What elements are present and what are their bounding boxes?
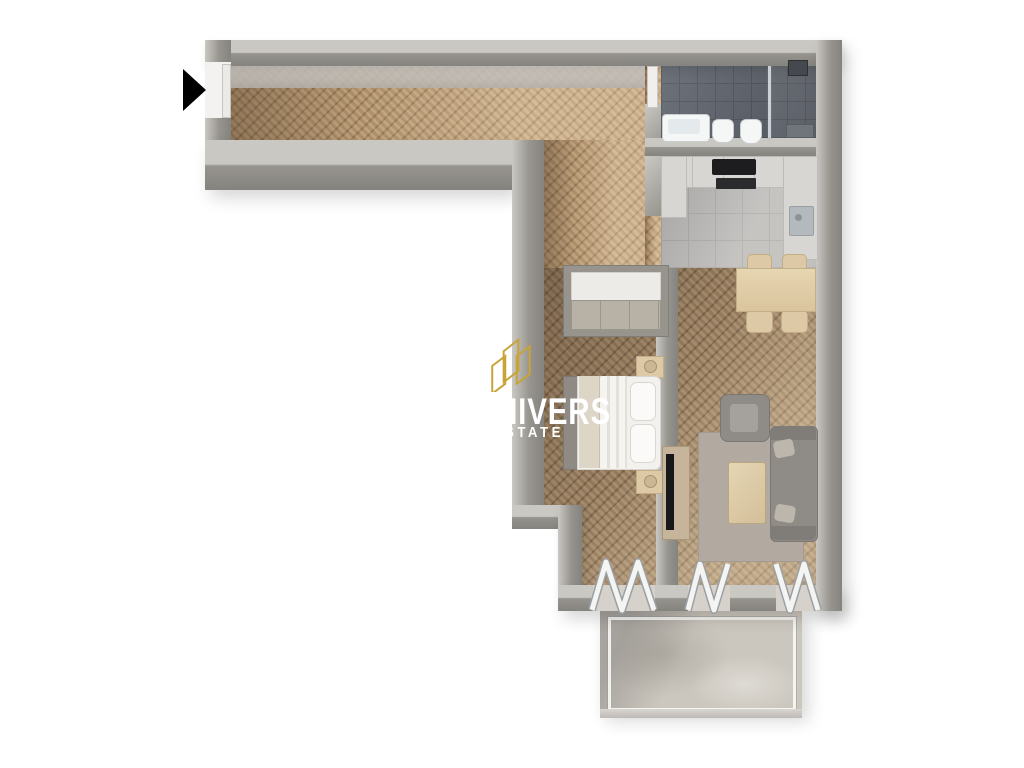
- bed-pillow: [630, 424, 656, 463]
- coffee-table: [728, 462, 766, 524]
- wall-right: [816, 40, 842, 611]
- hallway-inner-wall-face: [231, 66, 645, 88]
- nightstand-lamp: [644, 475, 657, 488]
- gold-buildings-logo-icon: [488, 330, 534, 392]
- sofa-armrest-top: [770, 426, 816, 440]
- entry-door-leaf: [222, 64, 231, 118]
- watermark-subtitle-text: STATE: [505, 424, 564, 441]
- sofa-armrest-bottom: [770, 526, 816, 540]
- cooktop: [712, 159, 756, 175]
- kitchen-faucet: [795, 214, 802, 221]
- tv: [666, 454, 674, 530]
- wall-kitchen-stub: [645, 156, 661, 216]
- bathroom-door-leaf: [647, 66, 658, 108]
- shower-drain: [786, 124, 814, 138]
- wardrobe-bottom-doors: [571, 300, 661, 330]
- bed-pillow: [630, 382, 656, 421]
- kitchen-tall-cabinet: [661, 156, 687, 218]
- toilet: [740, 119, 762, 144]
- kitchen-sink: [789, 206, 814, 236]
- armchair-seat: [730, 404, 758, 432]
- folding-door-living-2-icon: [770, 556, 822, 614]
- corridor-floor: [544, 140, 645, 270]
- bidet: [712, 119, 734, 143]
- folding-door-bedroom-icon: [588, 552, 660, 614]
- wall-bedroom-left: [512, 140, 544, 508]
- dining-chair: [746, 310, 773, 333]
- floor-plan-canvas: NIVERS STATE: [0, 0, 1024, 768]
- wardrobe-top-doors: [571, 272, 661, 301]
- nightstand-lamp: [644, 360, 657, 373]
- sofa-pillow: [774, 503, 797, 523]
- exterior-mask: [470, 529, 558, 587]
- oven: [716, 178, 756, 189]
- dining-table: [736, 268, 816, 312]
- shower-head: [788, 60, 808, 76]
- dining-chair: [781, 310, 808, 333]
- wall-step-vertical: [558, 505, 582, 591]
- washbasin-bowl: [668, 119, 700, 134]
- folding-door-living-1-icon: [684, 556, 736, 614]
- kitchen-passage-floor: [645, 216, 661, 270]
- balcony-glass-railing: [608, 617, 796, 711]
- entry-direction-arrow-icon: [183, 69, 206, 111]
- balcony-slab-edge: [600, 709, 802, 718]
- wall-top: [205, 40, 840, 66]
- wall-hallway-bottom: [205, 140, 512, 190]
